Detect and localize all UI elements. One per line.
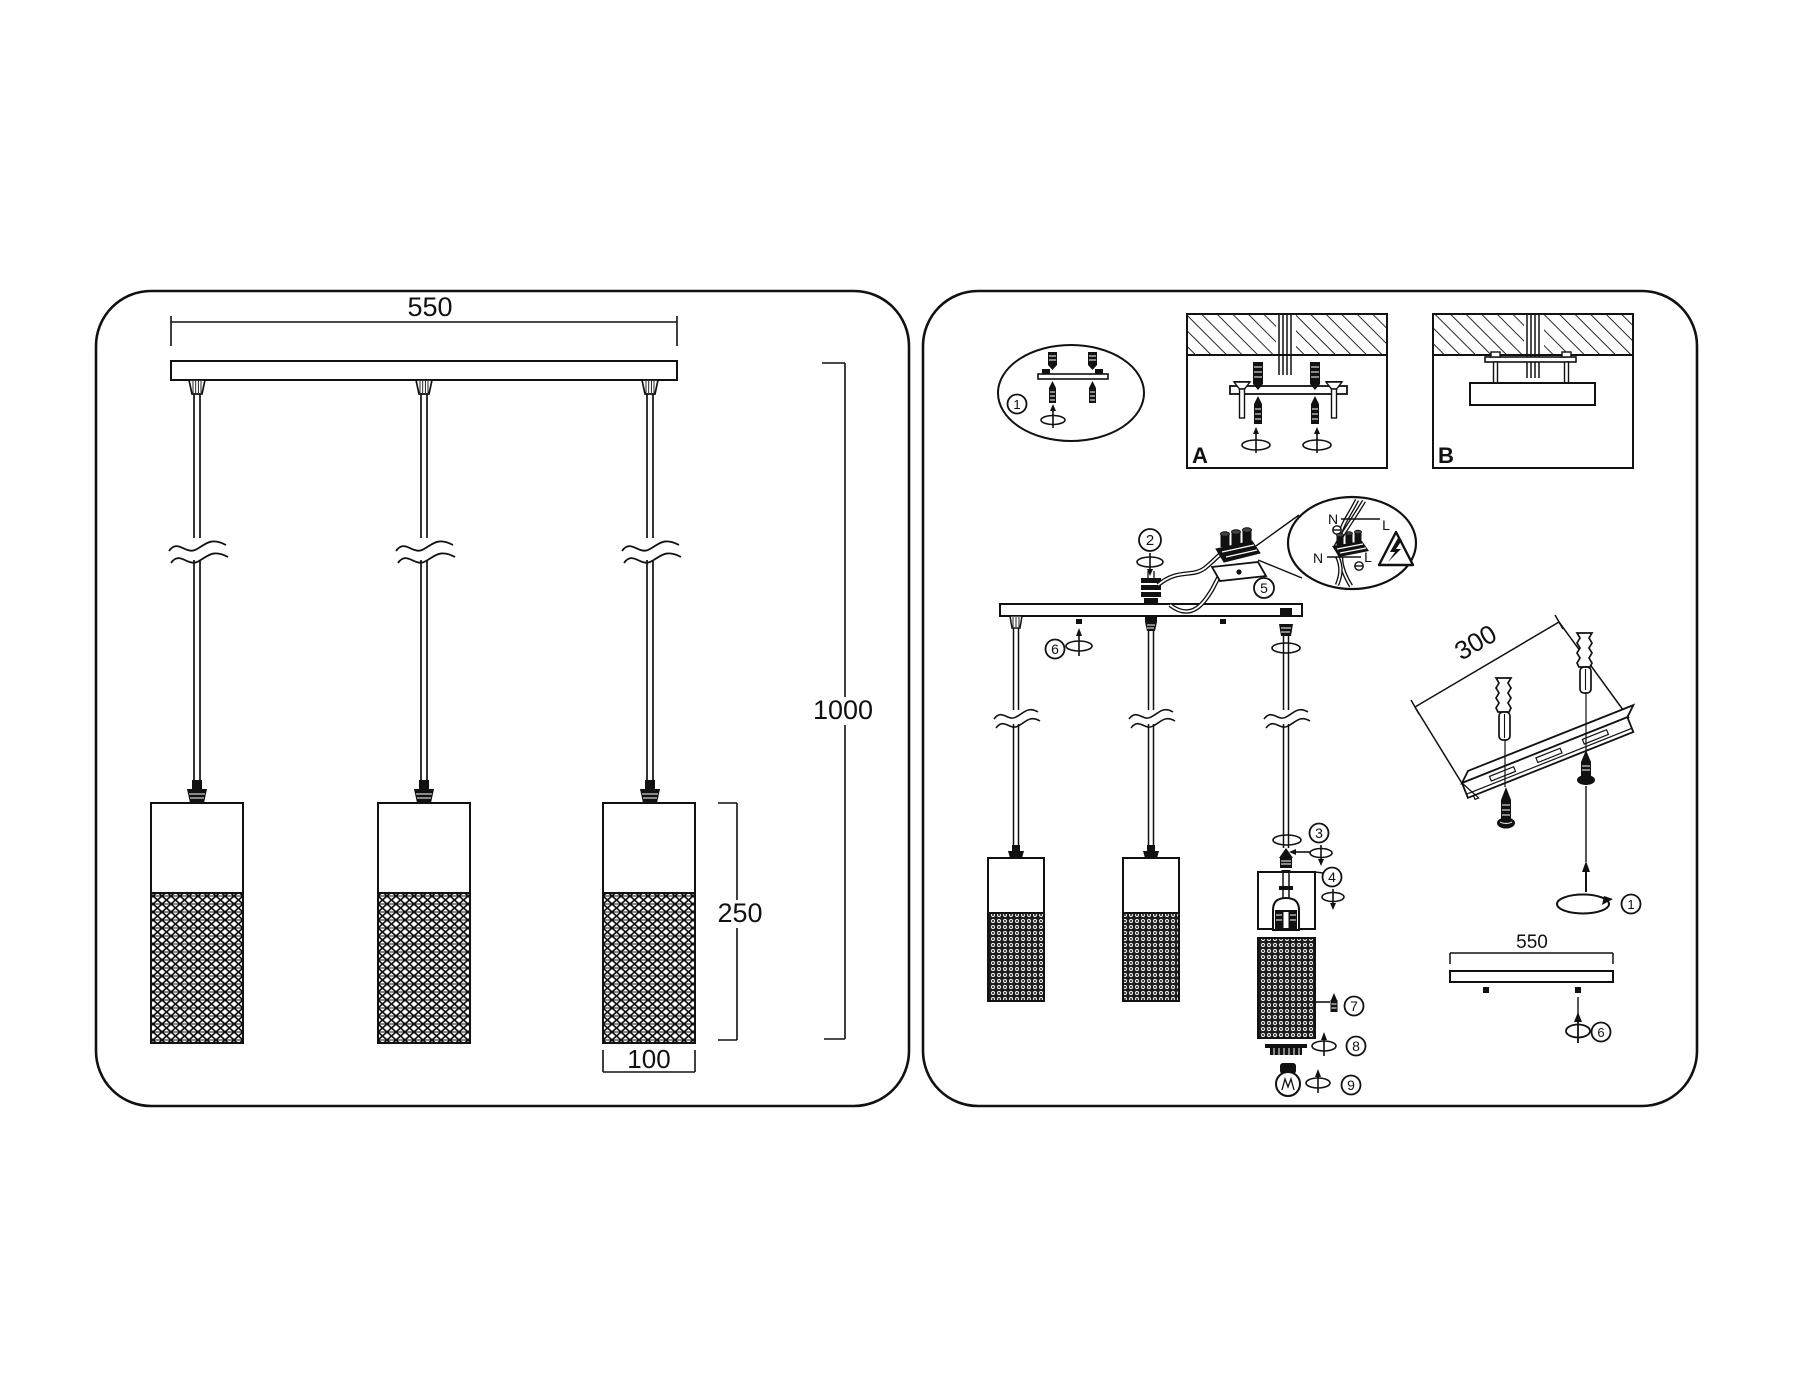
- exploded-shade-body: [1258, 938, 1315, 1038]
- dim-550-label: 550: [407, 292, 452, 322]
- step-6-label: 6: [1051, 641, 1059, 657]
- option-a-label: A: [1192, 443, 1208, 468]
- bar-screw-hole: [1076, 619, 1082, 624]
- left-panel: 550: [96, 291, 909, 1106]
- shade-3-mesh: [604, 894, 694, 1042]
- step-2-label: 2: [1146, 532, 1154, 549]
- dim-100-label: 100: [627, 1044, 670, 1074]
- step-1-label: 1: [1013, 397, 1020, 412]
- step1-detail-ellipse: 1: [998, 345, 1144, 441]
- shade-2-mesh: [379, 894, 469, 1042]
- step-9-label: 9: [1347, 1077, 1355, 1093]
- shade-1-mesh: [152, 894, 242, 1042]
- dim-550b-label: 550: [1516, 932, 1548, 953]
- mount-option-a: A: [1187, 314, 1387, 468]
- wiring-detail-ellipse: N L N L: [1288, 497, 1416, 589]
- rail-step-label: 1: [1627, 897, 1634, 912]
- canopy-bar: [1450, 971, 1613, 982]
- instruction-sheet: 550: [0, 0, 1800, 1400]
- hanging-bar: [1000, 604, 1302, 616]
- canopy-screw: [1483, 987, 1489, 993]
- canopy-screw: [1575, 987, 1581, 993]
- step-3-label: 3: [1315, 825, 1323, 841]
- step-7-label: 7: [1350, 998, 1358, 1014]
- trim-ring: [1265, 1044, 1307, 1048]
- dim-250-label: 250: [717, 898, 762, 928]
- mount-option-b: B: [1433, 314, 1633, 468]
- canopy-step-label: 6: [1597, 1025, 1604, 1040]
- canopy-bar: [1470, 383, 1595, 405]
- option-b-label: B: [1438, 443, 1454, 468]
- step-5-label: 5: [1260, 580, 1268, 596]
- right-shade-1-mesh: [989, 914, 1043, 1000]
- live-top-label: L: [1382, 517, 1390, 533]
- step-4-label: 4: [1328, 869, 1336, 885]
- step-8-label: 8: [1352, 1038, 1360, 1054]
- ceiling-bar: [171, 361, 677, 380]
- bulb-icon: [1276, 1072, 1300, 1096]
- bar-screw-hole: [1220, 619, 1226, 624]
- mounting-rail: [1485, 357, 1576, 362]
- right-panel: 1: [923, 291, 1697, 1106]
- neutral-top-label: N: [1328, 511, 1338, 527]
- dim-1000-label: 1000: [813, 695, 873, 725]
- neutral-bottom-label: N: [1313, 550, 1323, 566]
- right-shade-2-mesh: [1124, 914, 1178, 1000]
